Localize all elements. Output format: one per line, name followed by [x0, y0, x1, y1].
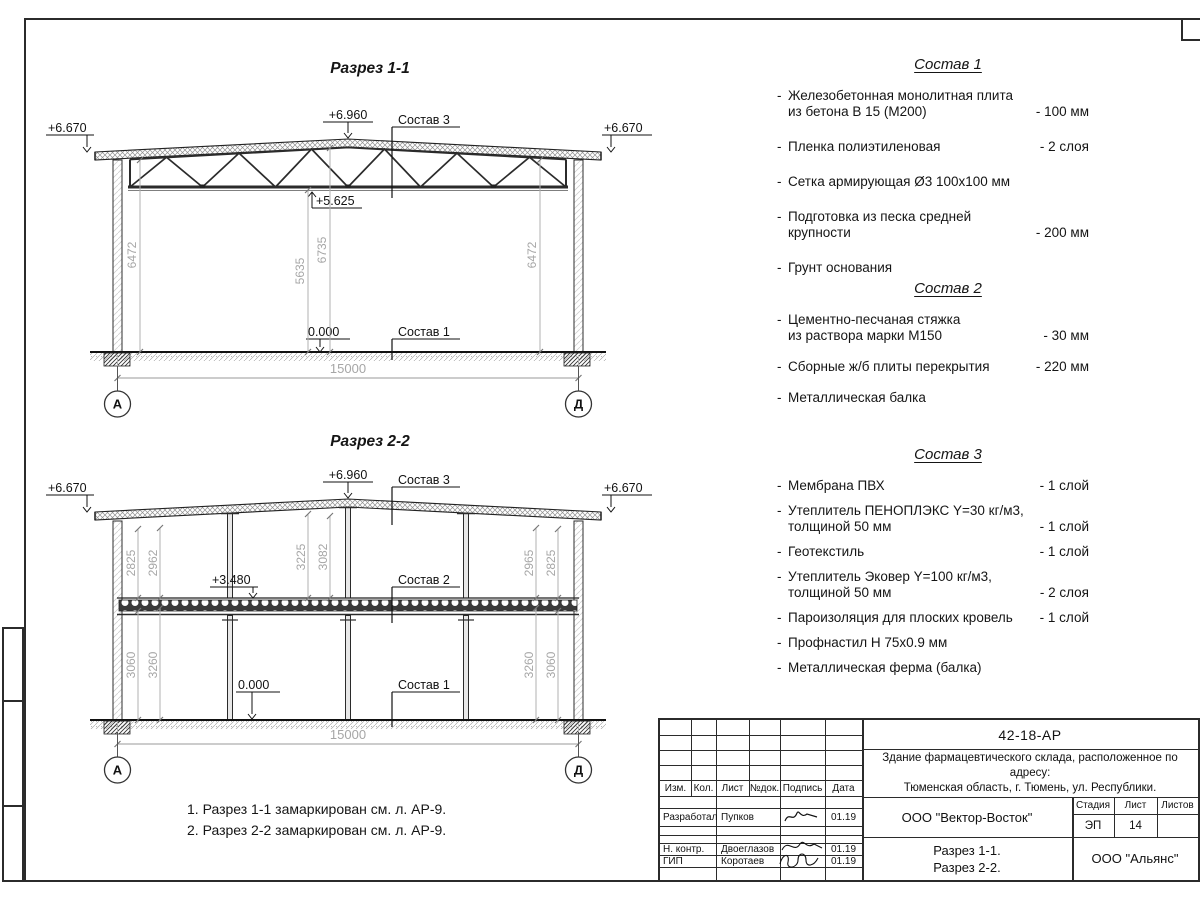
- svg-text:Состав 3: Состав 3: [398, 113, 450, 127]
- list-item: -Геотекстиль - 1 слой: [777, 544, 1089, 560]
- axis-right: Д: [566, 366, 592, 417]
- note-line: 2. Разрез 2-2 замаркирован см. л. АР-9.: [187, 820, 446, 841]
- dim-6735: 6735: [315, 236, 329, 263]
- svg-text:Д: Д: [574, 397, 584, 412]
- sheet-title: Разрез 1-1. Разрез 2-2.: [862, 837, 1072, 880]
- svg-text:0.000: 0.000: [238, 678, 269, 692]
- list-item: -Мембрана ПВХ - 1 слой: [777, 478, 1089, 494]
- dim-3060-lr: 3060: [544, 651, 558, 678]
- composition-3-title: Состав 3: [777, 446, 1089, 463]
- columns-lower: [222, 616, 474, 721]
- side-stamp-cell: [2, 700, 24, 807]
- col-header-podpis: Подпись: [780, 780, 825, 796]
- wall-right: [574, 521, 583, 720]
- document-code: 42-18-АР: [862, 720, 1198, 749]
- side-stamp-cell: [2, 805, 24, 882]
- composition-2-title: Состав 2: [777, 280, 1089, 297]
- col-header-list: Лист: [716, 780, 749, 796]
- list-item: -Сетка армирующая Ø3 100х100 мм: [777, 174, 1089, 190]
- row-date: 01.19: [825, 808, 862, 826]
- signature-gip: [776, 836, 826, 872]
- elevation-left: +6.670: [46, 121, 94, 152]
- side-stamp-cell: [2, 627, 24, 702]
- wall-left: [113, 160, 122, 352]
- svg-text:15000: 15000: [330, 727, 366, 742]
- svg-text:+6.670: +6.670: [48, 481, 87, 495]
- stage-label: Стадия: [1072, 797, 1114, 814]
- composition-1-title: Состав 1: [777, 56, 1089, 73]
- company-name: ООО "Вектор-Восток": [862, 797, 1072, 837]
- svg-text:+6.670: +6.670: [48, 121, 87, 135]
- sheets-total: [1157, 814, 1198, 837]
- svg-text:А: А: [113, 397, 123, 412]
- dim-2825-ul: 2825: [124, 549, 138, 576]
- dim-2825-ur: 2825: [544, 549, 558, 576]
- dim-3225-um: 3225: [294, 543, 308, 570]
- row-role: Н. контр.: [660, 843, 716, 855]
- svg-text:Состав 3: Состав 3: [398, 473, 450, 487]
- axis-right: Д: [566, 732, 592, 783]
- dim-6472-left: 6472: [125, 241, 139, 268]
- svg-text:+5.625: +5.625: [316, 194, 355, 208]
- col-header-data: Дата: [825, 780, 862, 796]
- col-header-kol: Кол.: [691, 780, 716, 796]
- row-date: 01.19: [825, 855, 862, 867]
- svg-text:+3.480: +3.480: [212, 573, 251, 587]
- elevation-truss-chord: +5.625: [308, 192, 362, 208]
- svg-text:15000: 15000: [330, 361, 366, 376]
- svg-text:+6.670: +6.670: [604, 121, 643, 135]
- svg-text:А: А: [113, 763, 123, 778]
- label-sostav-3: Состав 3: [392, 473, 460, 525]
- list-item: -Утеплитель ПЕНОПЛЭКС Y=30 кг/м3,толщино…: [777, 503, 1089, 535]
- row-date: 01.19: [825, 843, 862, 855]
- list-item: -Подготовка из песка среднейкрупности - …: [777, 209, 1089, 241]
- dim-3082-um: 3082: [316, 543, 330, 570]
- sheets-label: Листов: [1157, 797, 1198, 814]
- svg-text:Состав 2: Состав 2: [398, 573, 450, 587]
- composition-1: Состав 1 -Железобетонная монолитная плит…: [777, 56, 1089, 295]
- svg-text:Состав 1: Состав 1: [398, 325, 450, 339]
- list-item: -Цементно-песчаная стяжкаиз раствора мар…: [777, 312, 1089, 344]
- elevation-floor: 0.000: [306, 325, 350, 352]
- axis-left: А: [105, 366, 131, 417]
- notes: 1. Разрез 1-1 замаркирован см. л. АР-9. …: [187, 799, 446, 841]
- svg-text:+6.670: +6.670: [604, 481, 643, 495]
- elevation-right: +6.670: [602, 121, 652, 152]
- project-description: Здание фармацевтического склада, располо…: [862, 749, 1198, 797]
- composition-3: Состав 3 -Мембрана ПВХ - 1 слой -Утеплит…: [777, 446, 1089, 685]
- list-item: -Профнастил Н 75х0.9 мм: [777, 635, 1089, 651]
- signature-razrabotal: [781, 808, 825, 826]
- footing-right: [564, 353, 590, 366]
- section-1-1-drawing: +6.670 +6.670 +6.960 +5.625 0.000 Состав…: [40, 95, 660, 430]
- list-item: -Утеплитель Эковер Y=100 кг/м3,толщиной …: [777, 569, 1089, 601]
- elevation-floor: 0.000: [236, 678, 280, 719]
- elevation-mid-floor: +3.480: [210, 573, 258, 598]
- list-item: -Грунт основания: [777, 260, 1089, 276]
- dim-3260-ll: 3260: [146, 651, 160, 678]
- row-name: Двоеглазов: [718, 843, 780, 855]
- row-name: Коротаев: [718, 855, 780, 867]
- top-right-corner-box: [1181, 20, 1200, 41]
- elevation-right: +6.670: [602, 481, 652, 512]
- sheet-number: 14: [1114, 814, 1157, 837]
- col-header-ndok: №док.: [749, 780, 780, 796]
- sheet-label: Лист: [1114, 797, 1157, 814]
- dim-2965-ur: 2965: [522, 549, 536, 576]
- svg-text:+6.960: +6.960: [329, 108, 368, 122]
- row-role: Разработал: [660, 808, 716, 826]
- section-1-1-title: Разрез 1-1: [220, 60, 520, 78]
- title-block: Изм. Кол. Лист №док. Подпись Дата Разраб…: [658, 718, 1200, 882]
- elevation-peak: +6.960: [323, 108, 373, 138]
- dim-3060-ll: 3060: [124, 651, 138, 678]
- list-item: -Металлическая ферма (балка): [777, 660, 1089, 676]
- axis-left: А: [105, 732, 131, 783]
- org-name: ООО "Альянс": [1072, 837, 1198, 880]
- list-item: -Пароизоляция для плоских кровель - 1 сл…: [777, 610, 1089, 626]
- list-item: -Железобетонная монолитная плитаиз бетон…: [777, 88, 1089, 120]
- svg-text:0.000: 0.000: [308, 325, 339, 339]
- section-2-2-title: Разрез 2-2: [220, 433, 520, 451]
- section-2-2-drawing: +6.670 +6.670 +6.960 +3.480 0.000 Состав…: [40, 465, 660, 795]
- wall-left: [113, 521, 122, 720]
- composition-2: Состав 2 -Цементно-песчаная стяжкаиз рас…: [777, 280, 1089, 421]
- dim-5635: 5635: [293, 257, 307, 284]
- list-item: -Сборные ж/б плиты перекрытия - 220 мм: [777, 359, 1089, 375]
- note-line: 1. Разрез 1-1 замаркирован см. л. АР-9.: [187, 799, 446, 820]
- footing-right: [564, 721, 590, 734]
- svg-text:+6.960: +6.960: [329, 468, 368, 482]
- svg-text:Состав 1: Состав 1: [398, 678, 450, 692]
- wall-right: [574, 160, 583, 352]
- dim-3260-lr: 3260: [522, 651, 536, 678]
- dim-2962-ul: 2962: [146, 549, 160, 576]
- stage-value: ЭП: [1072, 814, 1114, 837]
- col-header-izm: Изм.: [660, 780, 691, 796]
- dim-6472-right: 6472: [525, 241, 539, 268]
- elevation-left: +6.670: [46, 481, 94, 512]
- list-item: -Металлическая балка: [777, 390, 1089, 406]
- row-name: Пупков: [718, 808, 780, 826]
- row-role: ГИП: [660, 855, 716, 867]
- elevation-peak: +6.960: [323, 468, 373, 498]
- intermediate-floor: [117, 598, 579, 615]
- list-item: -Пленка полиэтиленовая - 2 слоя: [777, 139, 1089, 155]
- svg-text:Д: Д: [574, 763, 584, 778]
- label-sostav-3: Состав 3: [392, 113, 460, 198]
